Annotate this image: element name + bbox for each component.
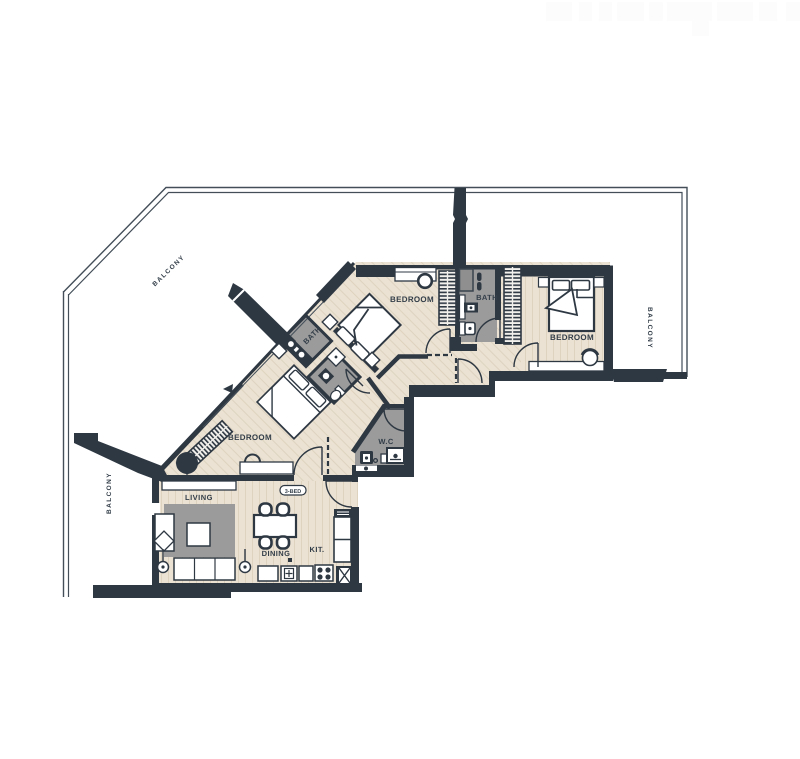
svg-text:3-BED: 3-BED [285,489,302,495]
svg-text:KIT.: KIT. [310,545,325,554]
svg-text:BATH: BATH [476,293,498,302]
svg-text:W.C: W.C [378,437,394,446]
svg-text:BEDROOM: BEDROOM [228,433,272,442]
svg-text:BALCONY: BALCONY [106,472,113,514]
svg-text:BEDROOM: BEDROOM [550,333,594,342]
svg-text:BEDROOM: BEDROOM [390,295,434,304]
svg-text:BALCONY: BALCONY [646,307,653,349]
svg-text:DINING: DINING [262,549,291,558]
svg-text:LIVING: LIVING [185,493,213,502]
